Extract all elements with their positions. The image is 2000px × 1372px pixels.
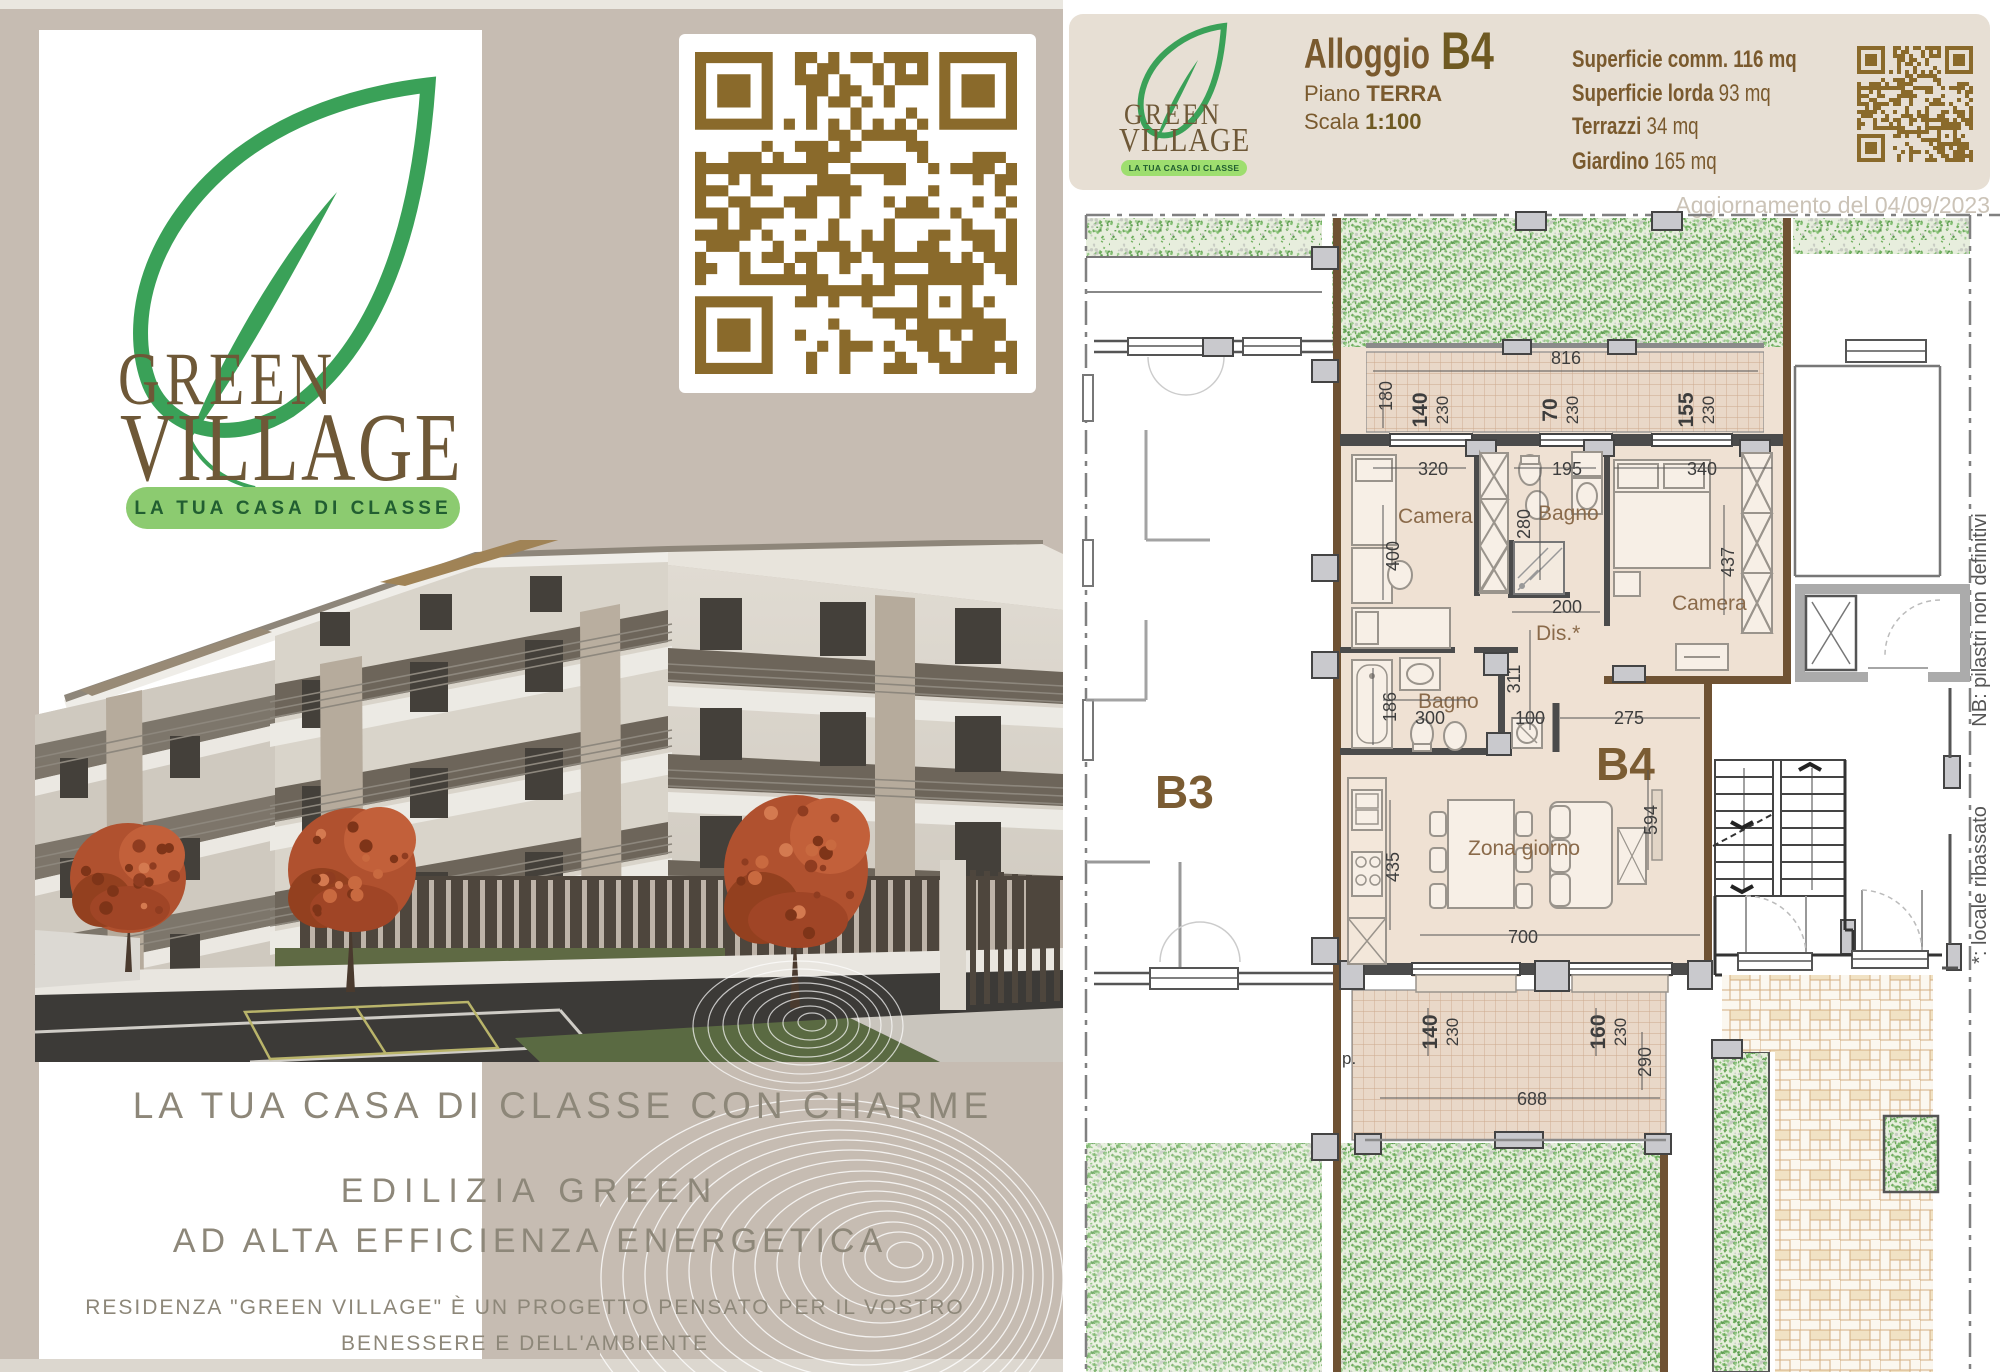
svg-text:594: 594	[1641, 805, 1661, 835]
svg-text:140: 140	[1419, 1014, 1442, 1049]
svg-text:230: 230	[1563, 396, 1582, 424]
svg-text:230: 230	[1699, 396, 1718, 424]
svg-text:Bagno: Bagno	[1538, 502, 1599, 525]
svg-text:400: 400	[1383, 541, 1403, 571]
svg-text:200: 200	[1552, 597, 1582, 617]
svg-text:816: 816	[1551, 348, 1581, 368]
svg-text:230: 230	[1611, 1018, 1630, 1046]
svg-text:p.: p.	[1342, 1049, 1356, 1068]
svg-text:Dis.*: Dis.*	[1536, 622, 1580, 645]
svg-text:B4: B4	[1596, 738, 1655, 790]
svg-text:*: locale ribassato: *: locale ribassato	[1969, 806, 1991, 964]
svg-text:Camera: Camera	[1672, 592, 1747, 615]
svg-text:B3: B3	[1155, 766, 1214, 818]
svg-text:311: 311	[1504, 665, 1524, 694]
svg-text:180: 180	[1376, 381, 1396, 411]
svg-text:NB: pilastri non definitivi: NB: pilastri non definitivi	[1969, 513, 1991, 726]
svg-text:435: 435	[1383, 852, 1403, 882]
svg-text:195: 195	[1552, 459, 1582, 479]
svg-text:437: 437	[1718, 547, 1738, 577]
svg-text:290: 290	[1635, 1047, 1655, 1077]
svg-text:140: 140	[1409, 392, 1432, 427]
svg-text:320: 320	[1418, 459, 1448, 479]
svg-text:70: 70	[1539, 398, 1562, 421]
svg-text:280: 280	[1514, 509, 1534, 539]
svg-text:230: 230	[1443, 1018, 1462, 1046]
svg-text:688: 688	[1517, 1089, 1547, 1109]
svg-text:186: 186	[1380, 692, 1400, 722]
svg-text:700: 700	[1508, 927, 1538, 947]
svg-text:230: 230	[1433, 396, 1452, 424]
svg-text:160: 160	[1587, 1014, 1610, 1049]
svg-text:Zona giorno: Zona giorno	[1468, 837, 1580, 860]
svg-text:Camera: Camera	[1398, 505, 1473, 528]
svg-text:300: 300	[1415, 708, 1445, 728]
svg-text:340: 340	[1687, 459, 1717, 479]
svg-text:155: 155	[1675, 392, 1698, 427]
